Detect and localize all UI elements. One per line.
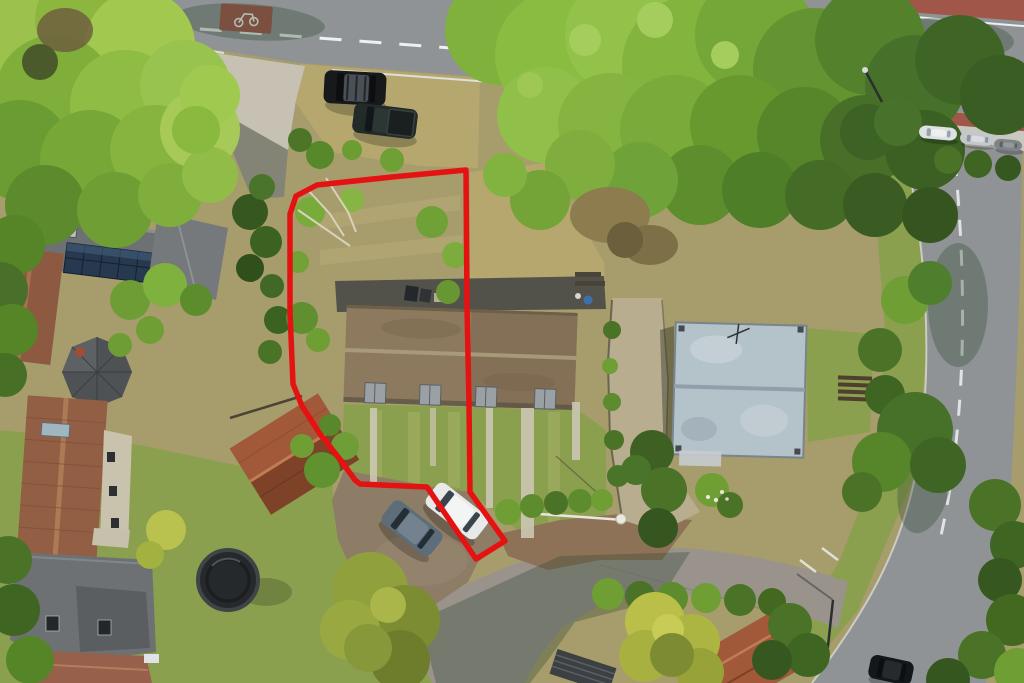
blue-bin bbox=[584, 296, 593, 305]
yard-item bbox=[575, 293, 581, 299]
gravel-path bbox=[521, 408, 534, 538]
aerial-photo bbox=[0, 0, 1024, 683]
skylight bbox=[144, 654, 159, 663]
window bbox=[111, 518, 119, 528]
roof-window bbox=[98, 620, 111, 635]
fence-panel bbox=[575, 281, 605, 286]
porch-canopy bbox=[679, 450, 721, 466]
semi-roof bbox=[343, 305, 577, 410]
aerial-photo-stage bbox=[0, 0, 1024, 683]
bin bbox=[419, 288, 432, 302]
roof-window bbox=[46, 616, 59, 631]
patio bbox=[92, 528, 130, 548]
road-sign-disc bbox=[616, 514, 626, 524]
fence-panel bbox=[575, 272, 601, 277]
chimney-pot bbox=[75, 347, 85, 357]
window bbox=[109, 486, 117, 496]
roof-window bbox=[41, 422, 70, 437]
window bbox=[107, 452, 115, 462]
bin bbox=[404, 285, 419, 302]
